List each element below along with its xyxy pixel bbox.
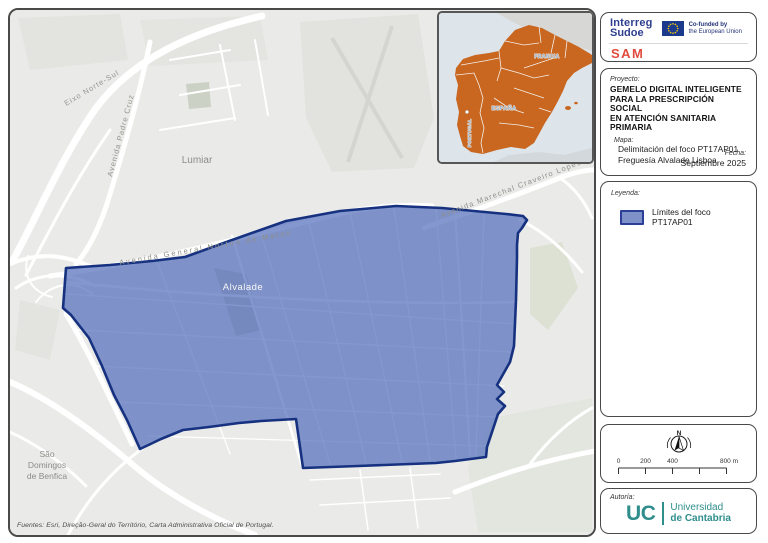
legend-label: Leyenda: [611, 190, 746, 197]
legend-panel: Leyenda: Límites del foco PT17AP01 [600, 181, 757, 417]
scale-tick-800: 800 m [720, 458, 738, 465]
map-title-label: Mapa: [614, 137, 746, 144]
sam-program-label: SAM [601, 44, 756, 61]
eu-cofunded-line1: Co-funded by [689, 22, 728, 28]
scale-tick-0: 0 [617, 458, 621, 465]
project-title-line2: PARA LA PRESCRIPCIÓN SOCIAL [610, 95, 746, 114]
label-lumiar: Lumiar [182, 155, 213, 166]
uc-logo-divider [662, 502, 664, 525]
project-label: Proyecto: [610, 76, 746, 83]
map-sources-note: Fuentes: Esri, Direção-Geral do Territór… [17, 522, 274, 529]
eu-cofunded-line2: the European Union [689, 29, 742, 35]
inset-label-espana: ESPAÑA [492, 105, 517, 112]
uc-logo: UC Universidad de Cantabria [610, 502, 747, 525]
inset-label-francia: FRANCIA [534, 54, 559, 60]
label-sao: São [39, 449, 54, 459]
north-arrow-icon: N [667, 430, 690, 452]
project-title-line3: EN ATENCIÓN SANITARIA PRIMARIA [610, 114, 746, 133]
inset-canvas: FRANCIA ESPAÑA PORTUGAL [439, 13, 592, 162]
park-patch [186, 82, 211, 109]
scale-bar: 0 200 400 800 m [617, 458, 738, 474]
inset-lisbon-marker [465, 110, 468, 113]
inset-balearics [565, 106, 571, 110]
uc-org-line1: Universidad [670, 503, 731, 514]
uc-org-line2: de Cantabria [670, 514, 731, 525]
inset-label-portugal: PORTUGAL [467, 119, 472, 147]
scale-tick-400: 400 [667, 458, 678, 465]
project-panel: Proyecto: GEMELO DIGITAL INTELIGENTE PAR… [600, 68, 757, 176]
sudoe-wordmark: Sudoe [610, 28, 653, 39]
interreg-sudoe-logo: Interreg Sudoe [610, 18, 653, 39]
legend-item-label: Límites del foco PT17AP01 [652, 207, 746, 227]
scale-panel: N 0 200 400 800 m [600, 424, 757, 483]
main-map: Eixo Norte-Sul Avenida Padre Cruz Lumiar… [8, 8, 596, 537]
label-alvalade: Alvalade [223, 282, 263, 293]
eu-flag-icon [662, 21, 684, 36]
inset-locator-map: FRANCIA ESPAÑA PORTUGAL [437, 11, 594, 164]
uc-abbr: UC [626, 503, 655, 524]
eu-cofunded-text: Co-funded by the European Union [689, 22, 742, 36]
authorship-panel: Autoría: UC Universidad de Cantabria [600, 488, 757, 534]
project-title: GEMELO DIGITAL INTELIGENTE PARA LA PRESC… [610, 85, 746, 133]
date-value: Septiembre 2025 [681, 158, 746, 168]
scale-graphic: N 0 200 400 800 m [601, 425, 755, 481]
authorship-label: Autoría: [610, 494, 747, 501]
label-domingos: Domingos [28, 460, 66, 470]
date-block: Fecha: Septiembre 2025 [681, 150, 746, 168]
legend-item: Límites del foco PT17AP01 [620, 207, 746, 227]
date-label: Fecha: [681, 150, 746, 157]
scale-tick-200: 200 [640, 458, 651, 465]
legend-swatch-focus-limits [620, 210, 644, 225]
logo-panel: Interreg Sudoe Co-funded by the European… [600, 12, 757, 62]
label-de-benfica: de Benfica [27, 471, 67, 481]
